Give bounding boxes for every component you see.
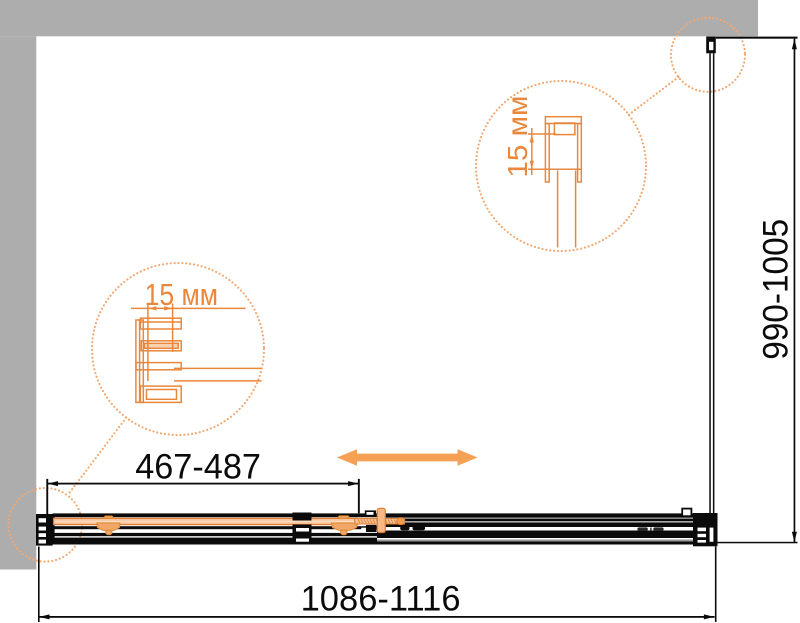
svg-text:15 мм: 15 мм [502, 96, 533, 178]
svg-text:1086-1116: 1086-1116 [301, 578, 461, 618]
svg-text:467-487: 467-487 [135, 446, 261, 486]
svg-text:15 мм: 15 мм [145, 277, 219, 312]
svg-text:990-1005: 990-1005 [756, 219, 796, 360]
